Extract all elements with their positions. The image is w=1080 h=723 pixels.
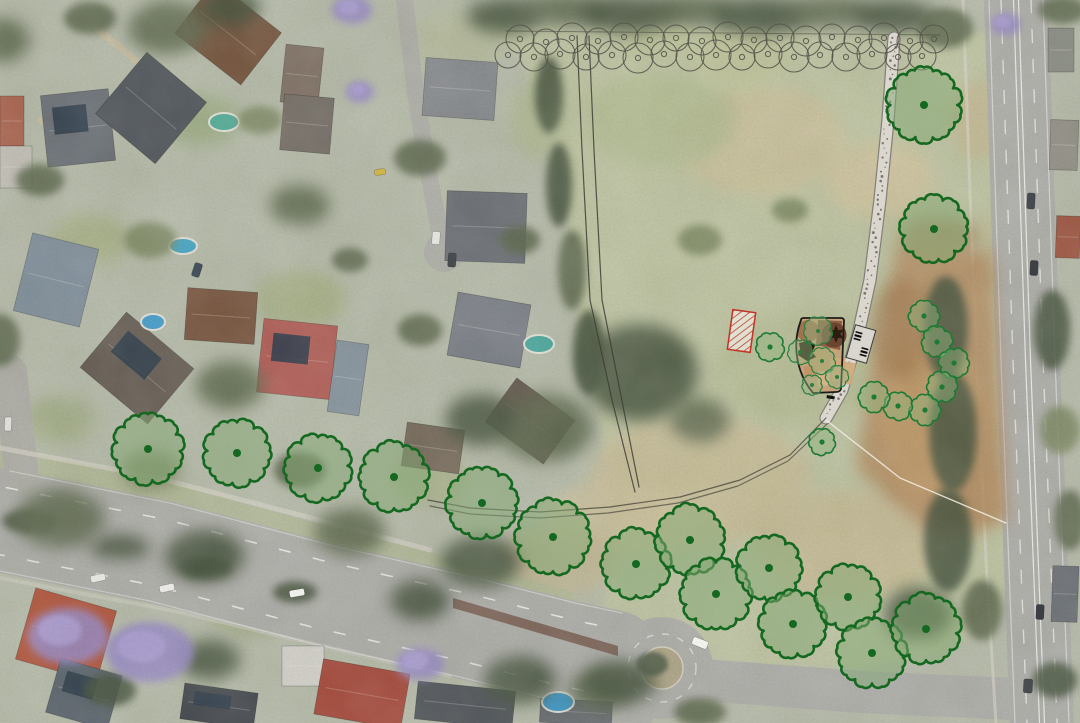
- stipple-dot: [874, 265, 876, 267]
- stipple-dot: [894, 51, 895, 52]
- stipple-dot: [839, 393, 842, 396]
- stipple-dot: [871, 275, 873, 277]
- stipple-dot: [879, 218, 881, 220]
- small-proposed-tree-trunk: [934, 339, 939, 344]
- small-proposed-tree-trunk: [871, 394, 876, 399]
- stipple-dot: [880, 171, 882, 173]
- proposed-street-tree-trunk: [686, 536, 694, 544]
- stipple-dot: [883, 133, 884, 134]
- small-proposed-tree-trunk: [939, 384, 944, 389]
- stipple-dot: [837, 397, 840, 400]
- proposed-street-tree-trunk: [233, 449, 241, 457]
- stipple-dot: [867, 279, 868, 280]
- small-proposed-tree-trunk: [895, 403, 900, 408]
- stipple-dot: [891, 37, 893, 39]
- stipple-dot: [867, 269, 869, 271]
- canopy-tree-trunk: [820, 359, 824, 363]
- stipple-dot: [875, 256, 876, 257]
- small-proposed-tree: [809, 429, 836, 456]
- small-proposed-tree-trunk: [922, 407, 927, 412]
- stipple-dot: [866, 283, 868, 285]
- canopy-tree-trunk: [835, 375, 839, 379]
- stipple-dot: [884, 166, 885, 167]
- stipple-dot: [864, 297, 866, 299]
- stipple-dot: [865, 288, 868, 291]
- proposed-street-tree-trunk: [789, 620, 797, 628]
- canopy-tree-trunk: [798, 350, 802, 354]
- proposed-feature-tree-trunk: [920, 101, 928, 109]
- stipple-dot: [863, 292, 866, 295]
- stipple-dot: [872, 231, 875, 234]
- stipple-dot: [880, 209, 882, 211]
- canopy-tree: [802, 375, 822, 395]
- stipple-dot: [877, 213, 880, 216]
- stipple-dot: [883, 147, 884, 148]
- stipple-dot: [873, 222, 874, 223]
- proposed-street-tree-trunk: [314, 464, 322, 472]
- stipple-dot: [832, 400, 834, 402]
- proposed-street-tree-trunk: [922, 625, 930, 633]
- stipple-dot: [881, 190, 883, 192]
- small-proposed-tree: [756, 333, 785, 362]
- stipple-dot: [881, 185, 883, 187]
- stipple-dot: [874, 227, 875, 228]
- stipple-dot: [829, 403, 831, 405]
- proposed-street-tree: [284, 434, 353, 503]
- stipple-dot: [886, 152, 887, 153]
- proposed-street-tree-trunk: [868, 649, 876, 657]
- proposed-street-tree-trunk: [844, 593, 852, 601]
- stipple-dot: [867, 303, 868, 304]
- stipple-dot: [892, 55, 894, 57]
- stipple-dot: [881, 175, 884, 178]
- proposed-street-tree: [890, 592, 961, 664]
- stipple-dot: [843, 390, 845, 392]
- proposed-street-tree-trunk: [549, 533, 557, 541]
- stipple-dot: [827, 413, 828, 414]
- small-proposed-tree-trunk: [767, 344, 772, 349]
- stipple-dot: [877, 194, 879, 196]
- proposed-feature-tree-trunk: [930, 225, 938, 233]
- stipple-dot: [889, 77, 892, 80]
- small-proposed-tree-trunk: [951, 360, 956, 365]
- proposed-street-tree-trunk: [390, 473, 398, 481]
- stipple-dot: [870, 260, 872, 262]
- stipple-dot: [829, 409, 831, 411]
- aerial-site-plan-svg: [0, 0, 1080, 723]
- small-proposed-tree: [909, 394, 941, 425]
- stipple-dot: [890, 41, 892, 43]
- small-proposed-tree-trunk: [819, 439, 824, 444]
- stipple-dot: [886, 138, 888, 140]
- stipple-dot: [865, 307, 867, 309]
- stipple-dot: [861, 321, 862, 322]
- proposed-street-tree-trunk: [632, 560, 640, 568]
- small-proposed-tree: [858, 382, 890, 413]
- stipple-dot: [877, 203, 879, 205]
- canopy-tree-trunk: [816, 329, 820, 333]
- stipple-dot: [859, 315, 861, 317]
- stipple-dot: [875, 251, 878, 254]
- stipple-dot: [864, 312, 865, 313]
- small-proposed-tree-trunk: [921, 313, 926, 318]
- stipple-dot: [881, 156, 883, 158]
- proposed-structure-hatch: [727, 310, 755, 353]
- proposed-street-tree-trunk: [765, 564, 773, 572]
- stipple-dot: [874, 236, 877, 239]
- stipple-dot: [874, 246, 877, 249]
- aerial-masterplan-map: [0, 0, 1080, 723]
- stipple-dot: [879, 180, 882, 183]
- proposed-street-tree-trunk: [144, 445, 152, 453]
- stipple-dot: [883, 128, 884, 129]
- stipple-dot: [877, 198, 879, 200]
- canopy-tree: [804, 317, 833, 346]
- stipple-dot: [871, 241, 873, 243]
- proposed-feature-tree: [899, 194, 968, 263]
- stipple-dot: [889, 59, 892, 62]
- stipple-dot: [885, 162, 887, 164]
- canopy-tree-trunk: [810, 383, 814, 387]
- stipple-dot: [882, 142, 884, 144]
- stipple-dot: [888, 124, 890, 126]
- stipple-dot: [892, 74, 894, 76]
- stipple-dot: [890, 69, 891, 70]
- proposed-street-tree-trunk: [478, 499, 486, 507]
- proposed-street-tree-trunk: [712, 590, 720, 598]
- proposed-street-tree: [358, 440, 429, 512]
- stipple-dot: [893, 64, 896, 67]
